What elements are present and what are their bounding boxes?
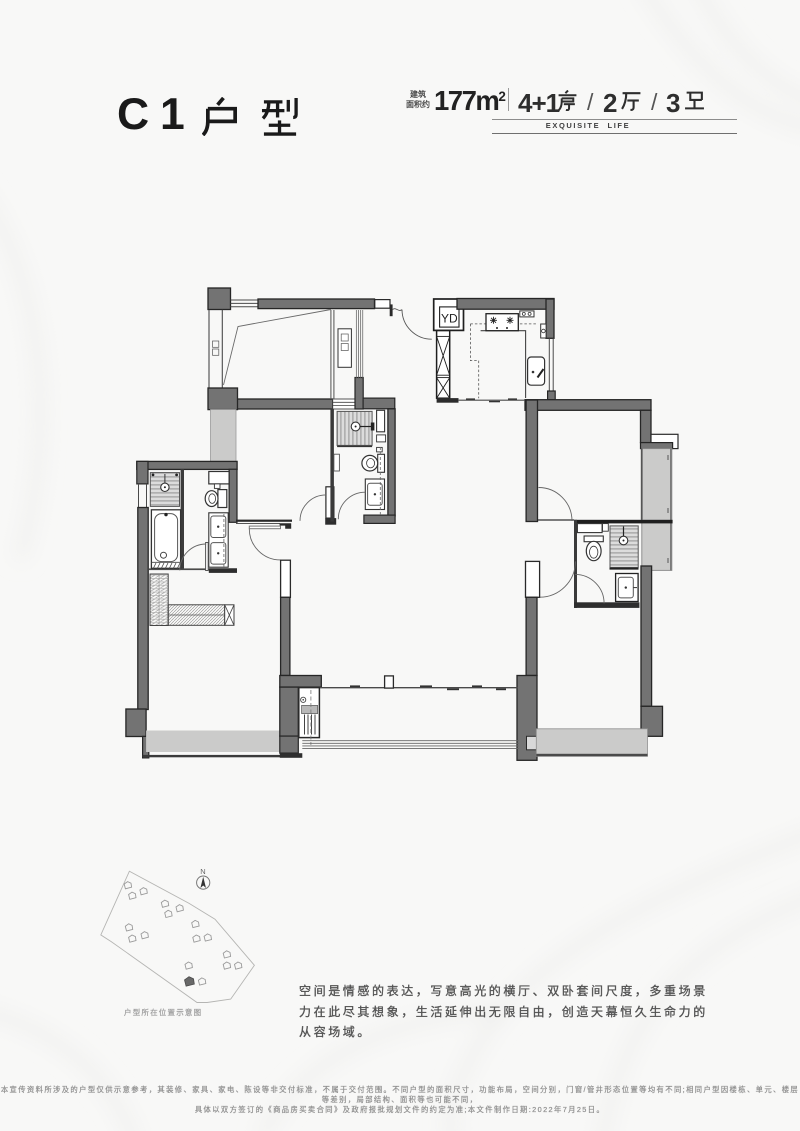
svg-text:N: N — [200, 867, 205, 876]
